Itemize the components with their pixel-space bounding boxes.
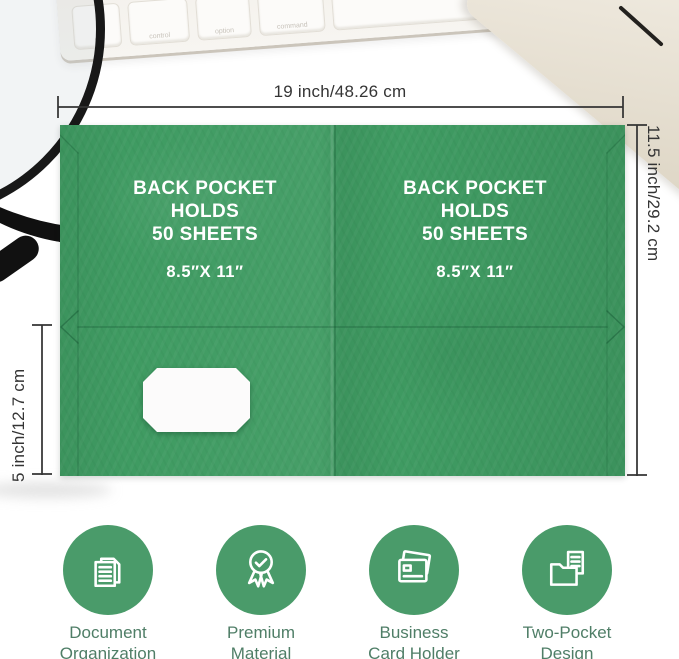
eyeglasses-corner-piece	[0, 231, 44, 288]
pocket-height-dimension-tick-bottom	[32, 473, 52, 475]
business-card	[143, 368, 250, 432]
card-holder-icon	[387, 543, 441, 597]
feature-label: Document Organization	[28, 622, 188, 659]
feature-label: Premium Material	[181, 622, 341, 659]
pocket-text-line: HOLDS	[85, 200, 325, 223]
key-command: command	[257, 0, 326, 36]
feature-premium-material: Premium Material	[181, 525, 341, 659]
pocket-size-text: 8.5″X 11″	[355, 263, 595, 282]
feature-label: Business Card Holder	[334, 622, 494, 659]
pocket-text-line: BACK POCKET	[355, 177, 595, 200]
pocket-text-line: 50 SHEETS	[355, 223, 595, 246]
feature-document-organization: Document Organization	[28, 525, 188, 659]
feature-two-pocket-design: Two-Pocket Design	[487, 525, 647, 659]
feature-label: Two-Pocket Design	[487, 622, 647, 659]
height-dimension-tick-top	[627, 124, 647, 126]
pocket-height-dimension-tick-top	[32, 324, 52, 326]
pocket-height-dimension-line	[41, 325, 43, 475]
pocket-text-line: BACK POCKET	[85, 177, 325, 200]
pocket-text-line: 50 SHEETS	[85, 223, 325, 246]
width-dimension-label: 19 inch/48.26 cm	[190, 82, 490, 102]
right-pocket-text: BACK POCKET HOLDS 50 SHEETS 8.5″X 11″	[355, 177, 595, 282]
award-icon	[234, 543, 288, 597]
green-folder: BACK POCKET HOLDS 50 SHEETS 8.5″X 11″ BA…	[60, 125, 625, 476]
business-card-slot	[143, 368, 250, 432]
height-dimension-tick-bottom	[627, 474, 647, 476]
width-dimension-tick-left	[57, 96, 59, 118]
pocket-text-line: HOLDS	[355, 200, 595, 223]
width-dimension-line	[58, 106, 623, 108]
height-dimension-label: 11.5 inch/29.2 cm	[643, 125, 663, 476]
left-pocket-text: BACK POCKET HOLDS 50 SHEETS 8.5″X 11″	[85, 177, 325, 282]
pocket-size-text: 8.5″X 11″	[85, 263, 325, 282]
feature-business-card-holder: Business Card Holder	[334, 525, 494, 659]
width-dimension-tick-right	[622, 96, 624, 118]
product-infographic: fn control option command	[0, 0, 679, 659]
pocket-height-dimension-label: 5 inch/12.7 cm	[9, 318, 29, 482]
documents-icon	[81, 543, 135, 597]
two-pocket-folder-icon	[540, 543, 594, 597]
photo-shadow	[0, 482, 112, 498]
height-dimension-line	[636, 125, 638, 476]
